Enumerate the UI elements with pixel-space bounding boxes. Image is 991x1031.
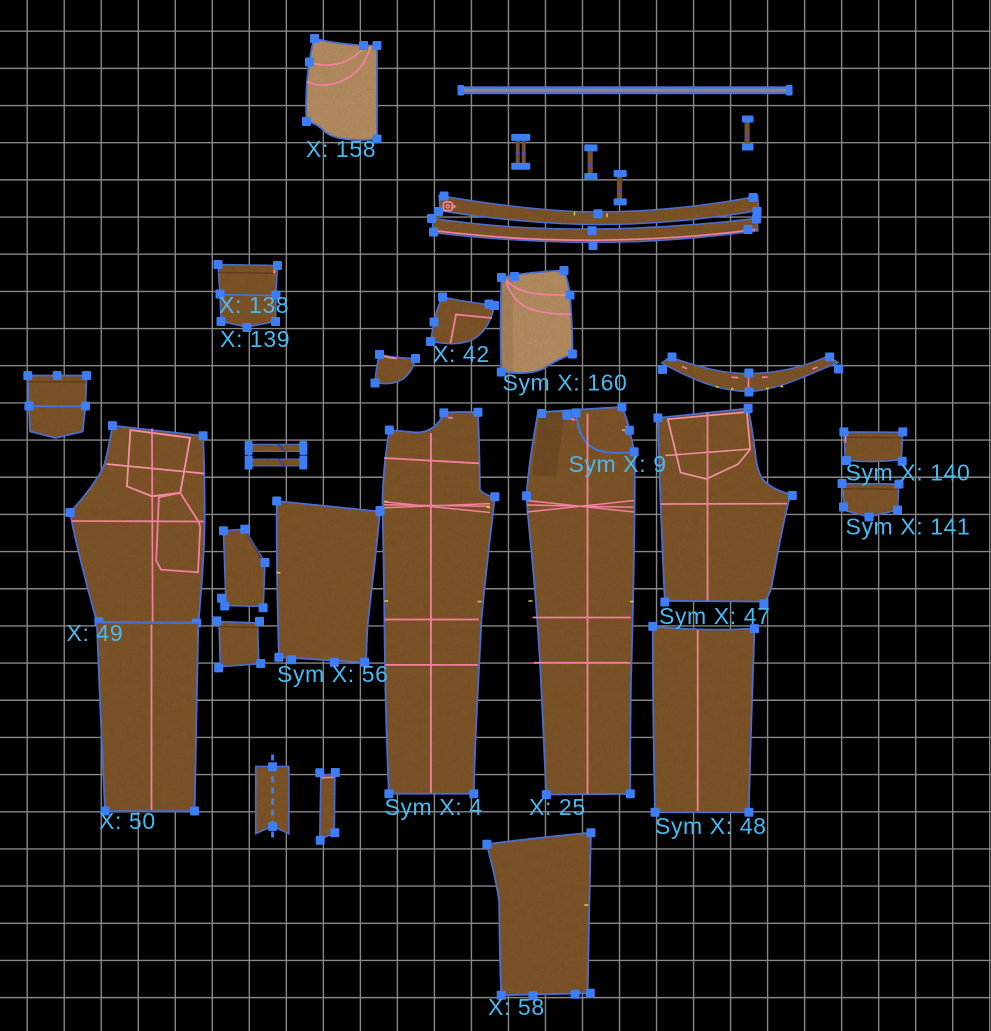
- svg-text:X: 139: X: 139: [220, 326, 290, 352]
- svg-text:Sym X: 4: Sym X: 4: [385, 794, 483, 820]
- svg-text:X: 58: X: 58: [488, 994, 545, 1020]
- svg-text:X: 138: X: 138: [219, 292, 289, 318]
- svg-text:Sym X: 48: Sym X: 48: [655, 813, 767, 839]
- svg-text:Sym X: 141: Sym X: 141: [846, 514, 971, 540]
- svg-text:X: 42: X: 42: [433, 341, 490, 367]
- svg-text:X: 25: X: 25: [529, 794, 586, 820]
- svg-text:Sym X: 9: Sym X: 9: [569, 451, 667, 477]
- svg-text:X: 49: X: 49: [67, 620, 124, 646]
- svg-text:Sym X: 160: Sym X: 160: [503, 370, 628, 396]
- svg-text:Sym X: 140: Sym X: 140: [846, 460, 971, 486]
- svg-text:X: 50: X: 50: [99, 808, 156, 834]
- svg-text:X: 158: X: 158: [306, 136, 376, 162]
- svg-text:Sym X: 47: Sym X: 47: [659, 603, 771, 629]
- svg-text:Sym X: 56: Sym X: 56: [277, 661, 389, 687]
